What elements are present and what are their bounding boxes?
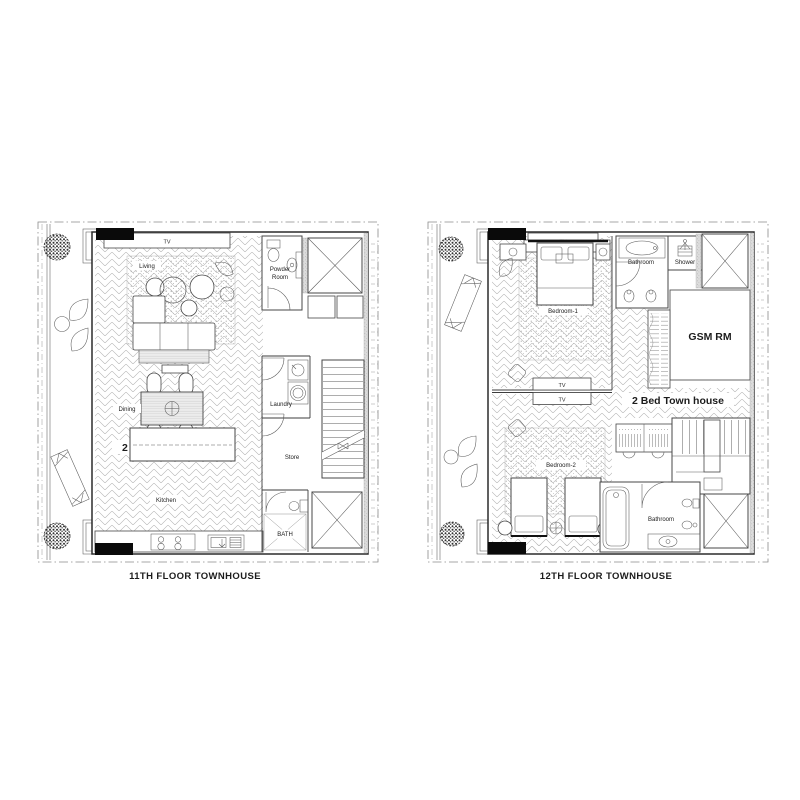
side-table [498,521,512,535]
elevator-shaft [696,234,748,288]
elevator-shaft [704,494,748,548]
tv-label: TV [163,240,170,246]
dining-label: Dining [118,407,135,413]
outdoor-chair [69,299,88,351]
laundry-label: Laundry [270,402,292,408]
bathroom-lower: Bathroom [600,482,700,552]
adjacent-wall-ticks [371,242,378,550]
plan-caption-11th: 11TH FLOOR TOWNHOUSE [129,571,261,582]
twin-bed [565,478,601,536]
section-marker [488,228,526,240]
coffee-table [190,275,214,299]
wardrobe [648,310,670,388]
cabinet [308,296,335,318]
tree-icon [440,522,464,546]
side-table [181,300,197,316]
gsm-room: GSM RM [670,290,750,380]
bathroom-lower-label: Bathroom [648,517,674,523]
powder-room-label: Room [272,275,288,281]
unit-type-label: 2 Bed Town house [632,395,724,407]
outdoor-table [444,450,458,464]
bathroom-upper-label: Bathroom [628,260,654,266]
outdoor-chair [458,436,477,487]
bath-label: BATH [277,532,293,538]
double-bed [537,243,593,305]
elevator-shaft [303,238,362,293]
bedroom1-label: Bedroom-1 [548,309,578,315]
section-marker [488,542,526,554]
ottoman [550,522,562,534]
sun-lounger [445,275,482,332]
kitchen-island [130,428,235,461]
powder-room: Powder Room [262,236,302,310]
wood-floor-hatch [612,308,648,388]
kitchen-label: Kitchen [156,498,176,504]
floor-plan-sheet: TV Living [0,0,800,800]
tree-icon [44,234,70,260]
sun-lounger [51,450,89,507]
elevator-shaft [312,492,362,548]
floor-plans-drawing: TV Living [0,0,800,800]
outdoor-table [55,317,70,332]
twin-bed [511,478,547,536]
powder-room-label: Powder [270,267,290,273]
section-marker [95,543,133,555]
bedroom2-label: Bedroom-2 [546,463,576,469]
party-wall [750,233,754,553]
floor-plan-11th: TV Living [38,222,378,582]
tv-label: TV [558,397,565,403]
stairs [322,360,364,478]
tv-label: TV [558,383,565,389]
nightstand [596,244,610,260]
section-marker [96,228,134,240]
party-wall [364,233,368,553]
cabinet [337,296,363,318]
living-label: Living [139,264,155,270]
tree-icon [44,523,70,549]
tree-icon [439,237,463,261]
adjacent-wall-ticks [757,242,764,550]
floor-plan-12th: TV Bedroom-1 [428,222,768,582]
gsm-room-label: GSM RM [688,331,731,343]
store-label: Store [285,455,300,461]
shower-label: Shower [675,260,695,266]
plan-caption-12th: 12TH FLOOR TOWNHOUSE [540,571,672,582]
nightstand [500,244,526,260]
wood-floor-hatch [528,544,600,552]
